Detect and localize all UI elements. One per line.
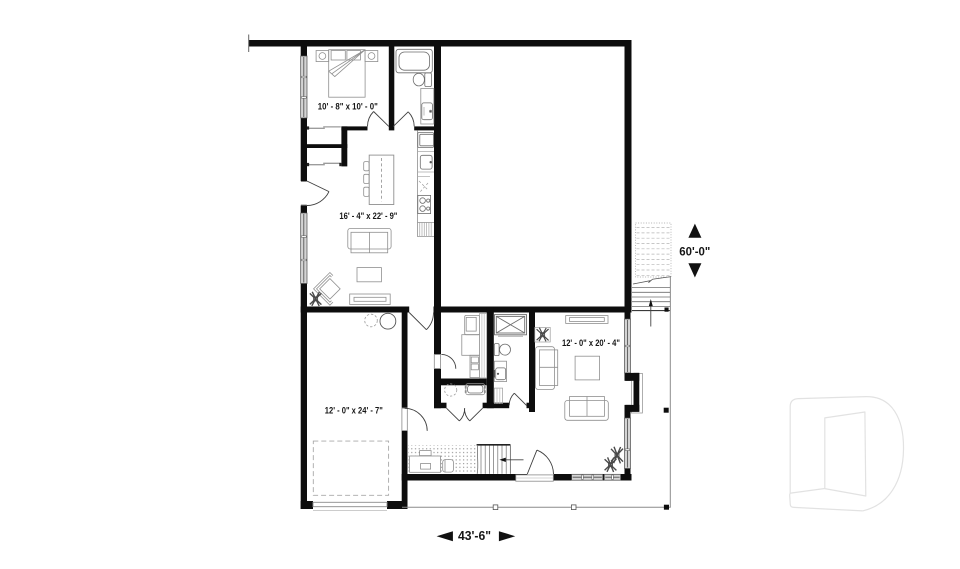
svg-text:12' - 0" x 24' - 7": 12' - 0" x 24' - 7" xyxy=(325,406,383,416)
svg-text:12' - 0" x 20' - 4": 12' - 0" x 20' - 4" xyxy=(562,338,620,348)
svg-text:43'-6": 43'-6" xyxy=(458,529,491,543)
svg-text:60'-0": 60'-0" xyxy=(679,247,710,259)
svg-text:10' - 8" x 10' - 0": 10' - 8" x 10' - 0" xyxy=(318,102,378,112)
svg-text:16' - 4" x 22' - 9": 16' - 4" x 22' - 9" xyxy=(339,211,397,221)
